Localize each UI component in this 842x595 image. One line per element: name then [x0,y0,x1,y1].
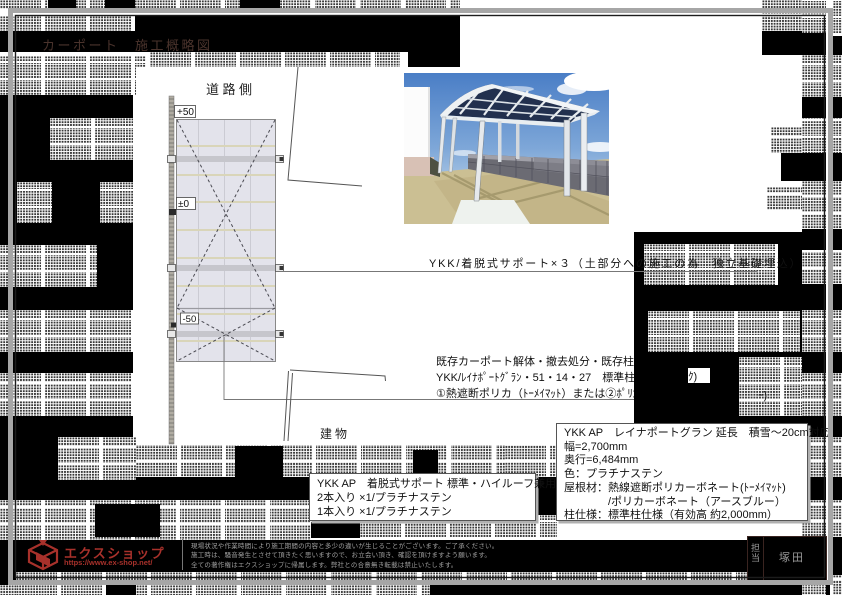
svg-text:-50: -50 [183,314,197,325]
svg-text:+50: +50 [177,107,194,118]
svg-text:±0: ±0 [178,199,189,210]
